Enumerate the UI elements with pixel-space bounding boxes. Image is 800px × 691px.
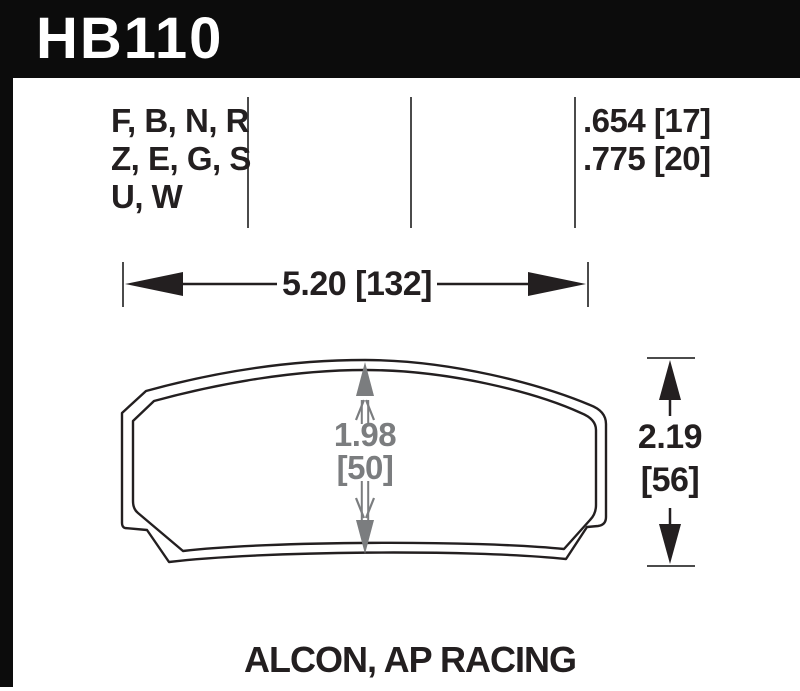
applications-text: ALCON, AP RACING (210, 640, 610, 680)
overall-height-dimension-label: 2.19 [56] (620, 416, 720, 502)
pad-outline-drawing (0, 0, 800, 691)
center-height-inches: 1.98 (315, 418, 415, 451)
center-height-dimension-label: 1.98 [50] (315, 418, 415, 484)
brake-pad-spec-sheet: HB110 F, B, N, R Z, E, G, S U, W .654 [1… (0, 0, 800, 691)
center-height-mm: [50] (315, 451, 415, 484)
overall-height-mm: [56] (620, 459, 720, 502)
width-dimension-label: 5.20 [132] (257, 265, 457, 303)
overall-height-inches: 2.19 (620, 416, 720, 459)
